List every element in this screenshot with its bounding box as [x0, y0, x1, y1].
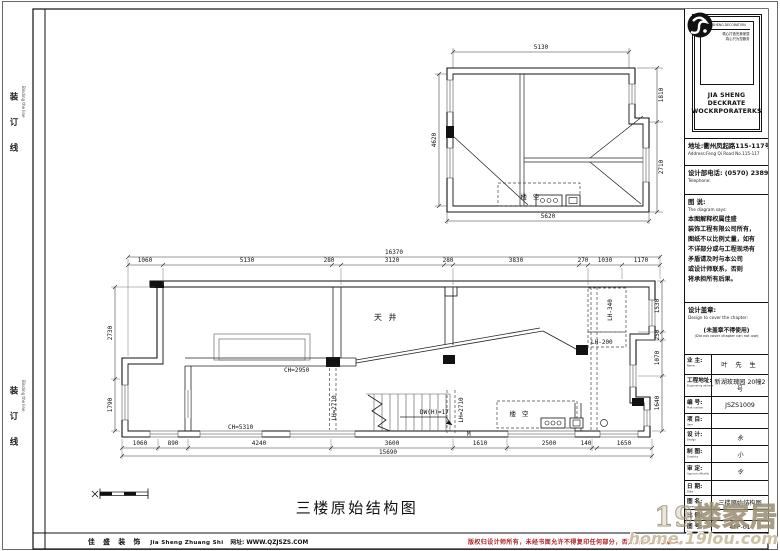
date-value [712, 481, 768, 495]
seal-warning-cn: (未盖章不得使用) [688, 325, 765, 334]
skylight-boxes [541, 418, 583, 428]
height-label: CH=2950 [284, 367, 310, 374]
dim-label: 1790 [107, 397, 114, 412]
title-block-row-date: 日 期:Date [685, 481, 768, 496]
window-lines [446, 80, 650, 182]
dim-label: 1530 [654, 298, 661, 313]
note-label-cn: 图 说: [688, 197, 765, 206]
project-address-value: 新湖玫瑰园 20幢2号 [712, 375, 768, 396]
dim-label: 5130 [240, 257, 255, 264]
pier [445, 287, 457, 296]
dim-label: 15690 [379, 449, 397, 456]
title-block-seal: 设计盖章: Design to cover the chapter: (未盖章不… [685, 303, 768, 355]
column [446, 126, 454, 138]
dim-label: 2710 [658, 159, 665, 174]
dim-label: 1060 [133, 440, 148, 447]
dim-label: 270 [578, 257, 589, 264]
approver-signature: 令 [711, 463, 768, 481]
footer-company-en: Jia Sheng Zhuang Shi [150, 540, 223, 546]
scale-bar-icon [92, 489, 148, 500]
address-en: Address:Feng Qi Road No.115-117 [688, 151, 765, 156]
title-block-row-approver: 审 定:Approve officially 令 [685, 463, 768, 481]
design-signature: 永 [711, 429, 768, 446]
seal-warning-en: (Did not cover chapter can not use) [688, 334, 765, 338]
phone-en: Telephone: [688, 178, 765, 183]
height-label: LH=2710 [458, 397, 465, 423]
plan-number-value: JSZS1009 [712, 397, 768, 413]
drain-circle [601, 420, 608, 427]
columns [150, 281, 644, 406]
binding-label-cn: 装 订 线 [7, 386, 19, 452]
dim-label: 280 [443, 257, 454, 264]
window-seat [214, 334, 310, 360]
cad-canvas: 5130 4620 1810 2710 5620 楼 空 [0, 0, 780, 551]
binding-label-en: Binding the line [21, 86, 26, 158]
title-block-row-item: 项 目:Item [685, 414, 768, 429]
title-block-row-number: 编 号:Plait number JSZS1009 [685, 397, 768, 414]
door-marker: M [467, 431, 471, 438]
dim-label: 1030 [598, 257, 613, 264]
dim-label: 4620 [431, 132, 438, 147]
title-block-logo-section: JIA SHENG DECORATION 精心打造完美家居 真心只为您服务 JI… [685, 9, 768, 139]
dim-label: 16370 [385, 249, 403, 256]
room-label-courtyard: 天 井 [374, 312, 399, 322]
height-label: LH-340 [607, 299, 614, 321]
skylight-boxes [536, 195, 580, 206]
stair-note: DW(H)=17 [420, 409, 449, 416]
binding-mark: 装 订 线 Binding the line [7, 92, 26, 158]
footer-website: 网址: WWW.QZJSZS.COM [230, 537, 308, 546]
height-label: LH=2710 [331, 395, 338, 421]
title-block-row-project-address: 工程地址:Engineering address 新湖玫瑰园 20幢2号 [685, 375, 768, 397]
room-label-void: 楼 空 [520, 192, 541, 201]
company-name-en: JIA SHENG DECKRATE [691, 92, 761, 108]
phone-cn: 设计部电话: (0570) 2389348 [688, 168, 765, 177]
title-block-notes: 图 说: The diagram says: 本图解释权属佳盛 装饰工程有限公司… [685, 195, 768, 303]
dim-label: 1060 [138, 257, 153, 264]
dim-label: 1810 [658, 87, 665, 102]
dim-label: 1610 [473, 440, 488, 447]
dim-label: 2730 [107, 325, 114, 340]
main-plan: 16370 1060 5130 280 3120 280 3830 270 10… [107, 249, 666, 459]
note-label-en: The diagram says: [688, 207, 765, 212]
room-label-void: 楼 空 [509, 409, 530, 418]
height-label: LH-200 [591, 339, 613, 346]
dim-label: 890 [168, 440, 179, 447]
address-cn: 地址:衢州凤起路115-117号 [688, 141, 765, 150]
dim-label: 1640 [654, 395, 661, 410]
footer-company-cn: 佳 盛 装 饰 [88, 536, 143, 546]
drawing-title: 三楼原始结构图 [296, 499, 419, 517]
dim-label: 140 [581, 440, 592, 447]
dim-label: 3600 [385, 440, 400, 447]
title-block-phone: 设计部电话: (0570) 2389348 Telephone: [685, 166, 768, 195]
watermark-cn: 19楼家居 [629, 504, 778, 531]
upper-plan: 5130 4620 1810 2710 5620 楼 空 [431, 44, 665, 224]
seal-label-en: Design to cover the chapter: [688, 315, 765, 320]
dim-label: 1650 [617, 440, 632, 447]
footer-company: 佳 盛 装 饰 Jia Sheng Zhuang Shi 网址: WWW.QZJ… [88, 536, 308, 546]
watermark-url: home.19lou.com [629, 531, 778, 547]
sheet-frame [3, 2, 778, 550]
binding-label-en: Binding the line [21, 380, 26, 452]
dim-label: 250 [654, 329, 661, 340]
dim-label: 4240 [252, 440, 267, 447]
dim-label: 2500 [542, 440, 557, 447]
title-block-row-design: 设 计:Design 永 [685, 429, 768, 446]
owner-value: 叶 先 生 [712, 355, 768, 374]
drawing-sheet: 5130 4620 1810 2710 5620 楼 空 [0, 0, 780, 551]
note-paragraph: 本图解释权属佳盛 装饰工程有限公司所有， 图纸不以比例丈量，如有 不详部分或与工… [688, 215, 765, 285]
dim-label: 3120 [385, 257, 400, 264]
title-block-row-owner: 业 主:Name: 叶 先 生 [685, 355, 768, 375]
upper-interior-lines [453, 74, 643, 206]
dim-label: 1170 [634, 257, 649, 264]
dim-label: 280 [324, 257, 335, 264]
drafter-signature: 小 [711, 446, 768, 463]
title-block-address: 地址:衢州凤起路115-117号 Address:Feng Qi Road No… [685, 139, 768, 166]
dim-label: 5620 [541, 213, 556, 220]
company-logo-icon [685, 9, 715, 43]
item-value [712, 414, 768, 428]
title-block-row-drafter: 制 图:Graphics 小 [685, 446, 768, 463]
dim-label: 1070 [654, 350, 661, 365]
binding-label-cn: 装 订 线 [7, 92, 19, 158]
company-name-en: WOCKRPORATERKS [691, 108, 761, 116]
binding-mark: 装 订 线 Binding the line [7, 386, 26, 452]
dim-label: 5130 [534, 44, 549, 51]
height-label: CH=5310 [228, 424, 254, 431]
watermark: 19楼家居 home.19lou.com [629, 504, 778, 547]
seal-label-cn: 设计盖章: [688, 305, 765, 314]
title-block: JIA SHENG DECORATION 精心打造完美家居 真心只为您服务 JI… [684, 9, 768, 533]
dim-label: 3830 [509, 257, 524, 264]
